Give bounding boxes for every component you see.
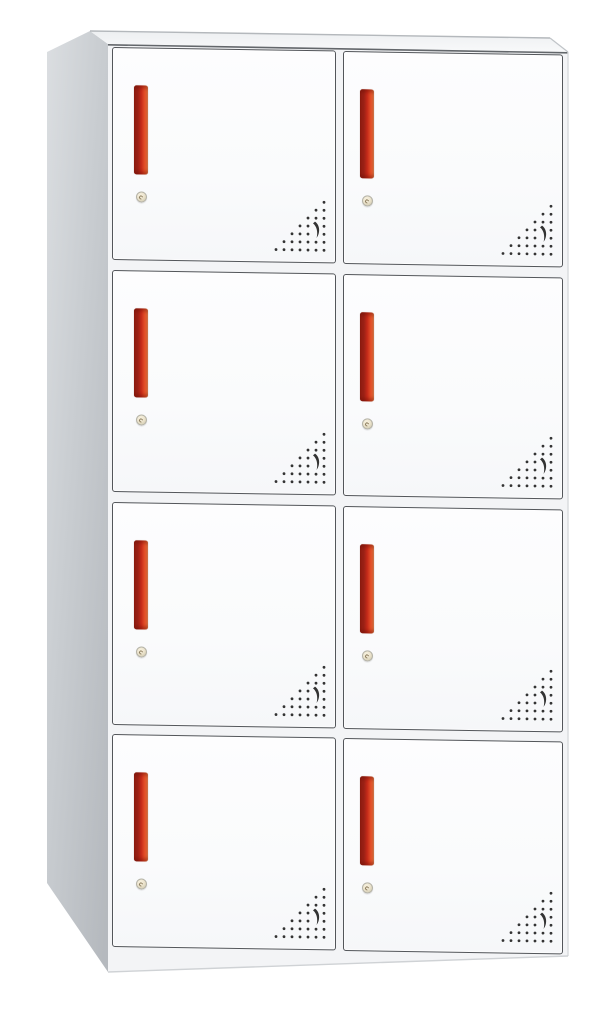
vent-hole bbox=[299, 713, 302, 716]
keyhole-lock bbox=[362, 195, 373, 206]
vent-hole bbox=[307, 225, 310, 228]
vent-hole bbox=[323, 904, 326, 907]
vent-hole bbox=[299, 911, 302, 914]
vent-hole bbox=[550, 236, 553, 239]
vent-hole bbox=[291, 927, 294, 930]
vent-hole bbox=[550, 244, 553, 247]
vent-crescent-cutout bbox=[540, 225, 546, 241]
keyhole-mark bbox=[138, 194, 144, 200]
vent-hole bbox=[299, 240, 302, 243]
vent-hole bbox=[323, 666, 326, 669]
vent-hole bbox=[534, 939, 537, 942]
vent-hole bbox=[550, 685, 553, 688]
vent-hole bbox=[526, 923, 529, 926]
vent-hole bbox=[323, 449, 326, 452]
vent-hole bbox=[542, 709, 545, 712]
vent-perforation bbox=[498, 884, 556, 947]
vent-hole bbox=[534, 693, 537, 696]
vent-hole bbox=[550, 436, 553, 439]
vent-hole bbox=[542, 252, 545, 255]
keyhole-lock bbox=[136, 414, 147, 425]
vent-hole bbox=[307, 249, 310, 252]
vent-hole bbox=[542, 444, 545, 447]
vent-hole bbox=[307, 714, 310, 717]
keyhole-mark bbox=[364, 421, 370, 427]
vent-hole bbox=[283, 248, 286, 251]
vent-hole bbox=[502, 939, 505, 942]
vent-hole bbox=[510, 717, 513, 720]
vent-perforation bbox=[271, 658, 329, 721]
vent-hole bbox=[315, 682, 318, 685]
keyhole-mark bbox=[364, 885, 370, 891]
door-handle bbox=[360, 776, 374, 865]
vent-hole bbox=[315, 714, 318, 717]
vent-hole bbox=[550, 228, 553, 231]
vent-hole bbox=[526, 460, 529, 463]
vent-hole bbox=[291, 232, 294, 235]
vent-hole bbox=[291, 248, 294, 251]
vent-crescent-cutout bbox=[540, 912, 546, 928]
vent-hole bbox=[550, 204, 553, 207]
vent-hole bbox=[534, 244, 537, 247]
vent-hole bbox=[323, 249, 326, 252]
vent-hole bbox=[526, 476, 529, 479]
vent-hole bbox=[307, 449, 310, 452]
keyhole-lock bbox=[136, 191, 147, 202]
vent-hole bbox=[291, 240, 294, 243]
vent-hole bbox=[307, 481, 310, 484]
keyhole-mark bbox=[364, 198, 370, 204]
vent-hole bbox=[550, 891, 553, 894]
vent-hole bbox=[307, 698, 310, 701]
vent-hole bbox=[307, 920, 310, 923]
vent-hole bbox=[534, 484, 537, 487]
door-handle bbox=[360, 544, 374, 633]
vent-hole bbox=[550, 939, 553, 942]
vent-hole bbox=[315, 473, 318, 476]
vent-crescent-cutout bbox=[313, 909, 319, 925]
vent-hole bbox=[526, 236, 529, 239]
vent-hole bbox=[518, 939, 521, 942]
vent-hole bbox=[534, 460, 537, 463]
vent-hole bbox=[307, 928, 310, 931]
vent-hole bbox=[526, 228, 529, 231]
vent-hole bbox=[307, 904, 310, 907]
vent-hole bbox=[550, 460, 553, 463]
locker-door-r1c2 bbox=[343, 51, 563, 267]
vent-hole bbox=[275, 480, 278, 483]
keyhole-lock bbox=[136, 646, 147, 657]
vent-hole bbox=[315, 904, 318, 907]
vent-hole bbox=[542, 939, 545, 942]
vent-hole bbox=[323, 473, 326, 476]
vent-hole bbox=[323, 912, 326, 915]
vent-hole bbox=[550, 212, 553, 215]
vent-hole bbox=[315, 481, 318, 484]
vent-hole bbox=[315, 209, 318, 212]
door-handle bbox=[360, 89, 374, 178]
vent-hole bbox=[315, 241, 318, 244]
vent-perforation bbox=[498, 662, 556, 725]
vent-crescent-cutout bbox=[313, 454, 319, 470]
door-handle bbox=[134, 772, 148, 861]
vent-hole bbox=[323, 698, 326, 701]
vent-hole bbox=[315, 249, 318, 252]
vent-crescent-cutout bbox=[313, 687, 319, 703]
vent-hole bbox=[550, 252, 553, 255]
vent-crescent-cutout bbox=[540, 457, 546, 473]
vent-hole bbox=[291, 697, 294, 700]
vent-hole bbox=[526, 931, 529, 934]
vent-hole bbox=[550, 907, 553, 910]
vent-hole bbox=[323, 201, 326, 204]
vent-hole bbox=[307, 473, 310, 476]
vent-hole bbox=[323, 457, 326, 460]
vent-hole bbox=[307, 682, 310, 685]
keyhole-lock bbox=[362, 418, 373, 429]
vent-hole bbox=[283, 713, 286, 716]
vent-hole bbox=[534, 685, 537, 688]
vent-hole bbox=[307, 690, 310, 693]
vent-hole bbox=[291, 713, 294, 716]
vent-hole bbox=[307, 217, 310, 220]
vent-perforation bbox=[498, 197, 556, 260]
vent-hole bbox=[307, 912, 310, 915]
vent-hole bbox=[291, 464, 294, 467]
locker-door-r4c2 bbox=[343, 738, 563, 954]
vent-hole bbox=[299, 919, 302, 922]
vent-hole bbox=[510, 709, 513, 712]
vent-hole bbox=[283, 480, 286, 483]
vent-hole bbox=[315, 674, 318, 677]
vent-hole bbox=[299, 464, 302, 467]
keyhole-mark bbox=[364, 653, 370, 659]
vent-hole bbox=[323, 465, 326, 468]
keyhole-mark bbox=[138, 417, 144, 423]
vent-hole bbox=[291, 935, 294, 938]
vent-perforation bbox=[271, 880, 329, 943]
vent-hole bbox=[542, 899, 545, 902]
vent-hole bbox=[526, 484, 529, 487]
vent-hole bbox=[534, 717, 537, 720]
vent-hole bbox=[323, 896, 326, 899]
vent-hole bbox=[315, 217, 318, 220]
vent-hole bbox=[534, 452, 537, 455]
vent-hole bbox=[291, 480, 294, 483]
vent-hole bbox=[315, 936, 318, 939]
vent-hole bbox=[299, 248, 302, 251]
vent-hole bbox=[323, 714, 326, 717]
vent-hole bbox=[299, 935, 302, 938]
vent-hole bbox=[323, 690, 326, 693]
locker-door-r4c1 bbox=[112, 734, 336, 950]
vent-hole bbox=[534, 252, 537, 255]
vent-hole bbox=[550, 899, 553, 902]
vent-hole bbox=[526, 939, 529, 942]
vent-hole bbox=[542, 452, 545, 455]
vent-hole bbox=[299, 456, 302, 459]
vent-hole bbox=[510, 244, 513, 247]
vent-hole bbox=[542, 244, 545, 247]
vent-hole bbox=[534, 915, 537, 918]
vent-hole bbox=[542, 212, 545, 215]
vent-hole bbox=[283, 472, 286, 475]
vent-hole bbox=[323, 433, 326, 436]
vent-hole bbox=[323, 706, 326, 709]
vent-hole bbox=[307, 936, 310, 939]
vent-hole bbox=[550, 220, 553, 223]
vent-hole bbox=[526, 252, 529, 255]
vent-hole bbox=[323, 241, 326, 244]
vent-hole bbox=[550, 452, 553, 455]
vent-hole bbox=[542, 476, 545, 479]
vent-perforation bbox=[498, 429, 556, 492]
vent-hole bbox=[291, 705, 294, 708]
vent-hole bbox=[502, 484, 505, 487]
vent-hole bbox=[299, 927, 302, 930]
locker-door-r1c1 bbox=[112, 47, 336, 263]
vent-hole bbox=[534, 907, 537, 910]
vent-hole bbox=[534, 236, 537, 239]
vent-hole bbox=[510, 476, 513, 479]
vent-hole bbox=[275, 713, 278, 716]
vent-hole bbox=[315, 896, 318, 899]
vent-hole bbox=[542, 717, 545, 720]
vent-hole bbox=[526, 717, 529, 720]
vent-hole bbox=[518, 701, 521, 704]
vent-hole bbox=[323, 225, 326, 228]
vent-hole bbox=[550, 484, 553, 487]
locker-door-r3c1 bbox=[112, 502, 336, 728]
vent-hole bbox=[526, 709, 529, 712]
vent-hole bbox=[323, 936, 326, 939]
door-handle bbox=[134, 85, 148, 174]
vent-hole bbox=[323, 209, 326, 212]
vent-hole bbox=[299, 705, 302, 708]
vent-hole bbox=[307, 241, 310, 244]
vent-hole bbox=[518, 931, 521, 934]
vent-hole bbox=[526, 468, 529, 471]
vent-hole bbox=[526, 244, 529, 247]
vent-hole bbox=[550, 931, 553, 934]
vent-perforation bbox=[271, 425, 329, 488]
vent-hole bbox=[315, 449, 318, 452]
vent-hole bbox=[550, 677, 553, 680]
vent-hole bbox=[323, 888, 326, 891]
vent-hole bbox=[534, 228, 537, 231]
vent-hole bbox=[323, 674, 326, 677]
vent-hole bbox=[502, 717, 505, 720]
locker-door-r2c2 bbox=[343, 274, 563, 499]
vent-hole bbox=[542, 907, 545, 910]
vent-hole bbox=[502, 252, 505, 255]
vent-hole bbox=[307, 457, 310, 460]
vent-hole bbox=[518, 244, 521, 247]
vent-hole bbox=[518, 468, 521, 471]
vent-hole bbox=[518, 709, 521, 712]
vent-hole bbox=[510, 484, 513, 487]
door-handle bbox=[360, 312, 374, 401]
vent-perforation bbox=[271, 193, 329, 256]
vent-hole bbox=[323, 928, 326, 931]
vent-hole bbox=[534, 468, 537, 471]
keyhole-mark bbox=[138, 881, 144, 887]
keyhole-mark bbox=[138, 649, 144, 655]
vent-hole bbox=[283, 705, 286, 708]
vent-hole bbox=[550, 717, 553, 720]
vent-hole bbox=[299, 697, 302, 700]
keyhole-lock bbox=[362, 650, 373, 661]
vent-hole bbox=[323, 233, 326, 236]
vent-hole bbox=[550, 923, 553, 926]
vent-hole bbox=[518, 717, 521, 720]
vent-hole bbox=[299, 472, 302, 475]
vent-hole bbox=[299, 689, 302, 692]
vent-hole bbox=[510, 252, 513, 255]
vent-hole bbox=[526, 915, 529, 918]
keyhole-lock bbox=[136, 878, 147, 889]
vent-hole bbox=[550, 701, 553, 704]
vent-hole bbox=[542, 677, 545, 680]
vent-hole bbox=[291, 472, 294, 475]
vent-hole bbox=[323, 441, 326, 444]
vent-hole bbox=[323, 920, 326, 923]
vent-hole bbox=[550, 709, 553, 712]
vent-hole bbox=[518, 923, 521, 926]
vent-hole bbox=[299, 224, 302, 227]
vent-hole bbox=[534, 709, 537, 712]
vent-hole bbox=[518, 476, 521, 479]
vent-hole bbox=[534, 931, 537, 934]
vent-hole bbox=[534, 923, 537, 926]
locker-door-r3c2 bbox=[343, 506, 563, 732]
vent-hole bbox=[323, 682, 326, 685]
vent-hole bbox=[315, 441, 318, 444]
vent-hole bbox=[323, 481, 326, 484]
vent-hole bbox=[307, 465, 310, 468]
vent-hole bbox=[283, 240, 286, 243]
vent-hole bbox=[534, 476, 537, 479]
vent-crescent-cutout bbox=[540, 690, 546, 706]
vent-hole bbox=[550, 468, 553, 471]
locker-door-r2c1 bbox=[112, 270, 336, 495]
keyhole-lock bbox=[362, 882, 373, 893]
vent-hole bbox=[315, 706, 318, 709]
vent-hole bbox=[299, 480, 302, 483]
vent-hole bbox=[518, 252, 521, 255]
locker-product-image bbox=[0, 0, 605, 1009]
vent-hole bbox=[283, 927, 286, 930]
vent-hole bbox=[518, 236, 521, 239]
door-handle bbox=[134, 540, 148, 629]
vent-hole bbox=[275, 935, 278, 938]
vent-hole bbox=[550, 693, 553, 696]
vent-hole bbox=[299, 232, 302, 235]
vent-crescent-cutout bbox=[313, 222, 319, 238]
door-grid bbox=[0, 0, 605, 1009]
vent-hole bbox=[542, 484, 545, 487]
vent-hole bbox=[283, 935, 286, 938]
vent-hole bbox=[526, 693, 529, 696]
vent-hole bbox=[526, 701, 529, 704]
vent-hole bbox=[550, 444, 553, 447]
vent-hole bbox=[307, 706, 310, 709]
vent-hole bbox=[510, 931, 513, 934]
vent-hole bbox=[542, 931, 545, 934]
door-handle bbox=[134, 308, 148, 397]
vent-hole bbox=[275, 248, 278, 251]
vent-hole bbox=[534, 220, 537, 223]
vent-hole bbox=[510, 939, 513, 942]
vent-hole bbox=[323, 217, 326, 220]
vent-hole bbox=[307, 233, 310, 236]
vent-hole bbox=[534, 701, 537, 704]
vent-hole bbox=[550, 476, 553, 479]
vent-hole bbox=[550, 669, 553, 672]
vent-hole bbox=[315, 928, 318, 931]
vent-hole bbox=[542, 685, 545, 688]
vent-hole bbox=[518, 484, 521, 487]
vent-hole bbox=[550, 915, 553, 918]
vent-hole bbox=[542, 220, 545, 223]
vent-hole bbox=[291, 919, 294, 922]
